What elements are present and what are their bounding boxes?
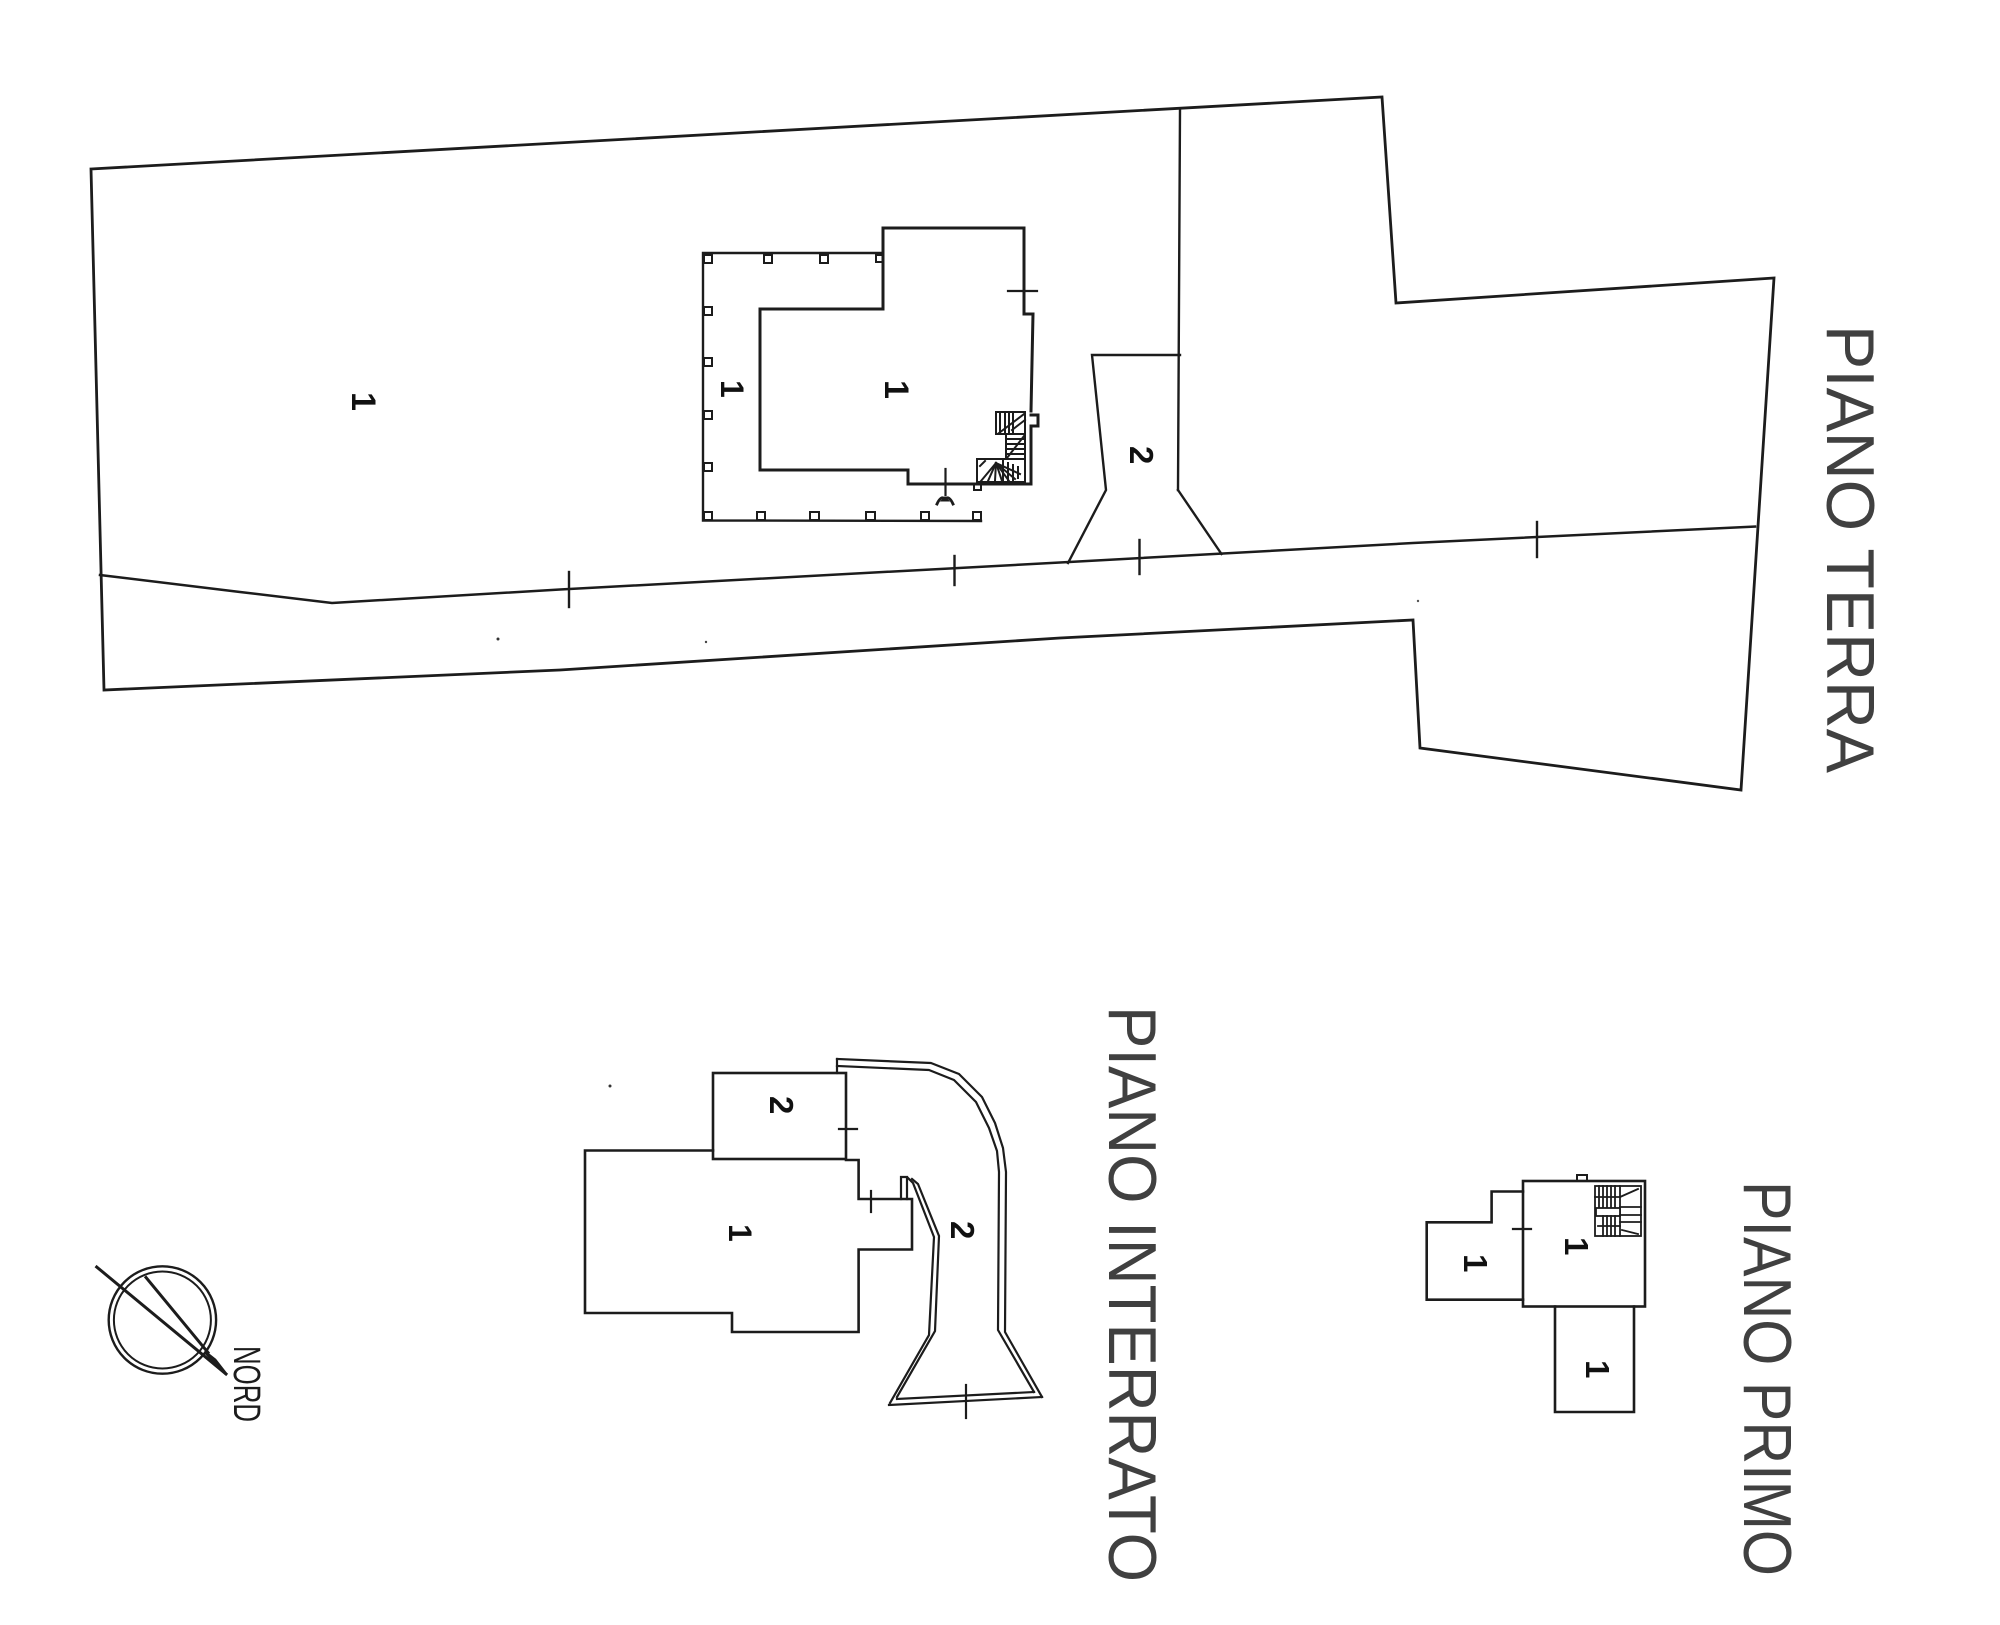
svg-text:1: 1 (1558, 1237, 1595, 1255)
svg-text:1: 1 (1579, 1360, 1616, 1378)
svg-text:2: 2 (944, 1221, 981, 1239)
svg-text:1: 1 (1457, 1254, 1494, 1272)
svg-text:NORD: NORD (225, 1346, 267, 1422)
svg-text:1: 1 (344, 392, 382, 411)
svg-text:1: 1 (722, 1224, 758, 1242)
svg-text:PIANO TERRA: PIANO TERRA (1812, 325, 1888, 774)
svg-text:1: 1 (714, 380, 750, 398)
svg-text:1: 1 (877, 380, 915, 399)
svg-text:PIANO PRIMO: PIANO PRIMO (1729, 1181, 1805, 1576)
svg-text:2: 2 (763, 1096, 800, 1114)
svg-text:2: 2 (1123, 446, 1160, 464)
svg-text:PIANO INTERRATO: PIANO INTERRATO (1094, 1006, 1170, 1582)
